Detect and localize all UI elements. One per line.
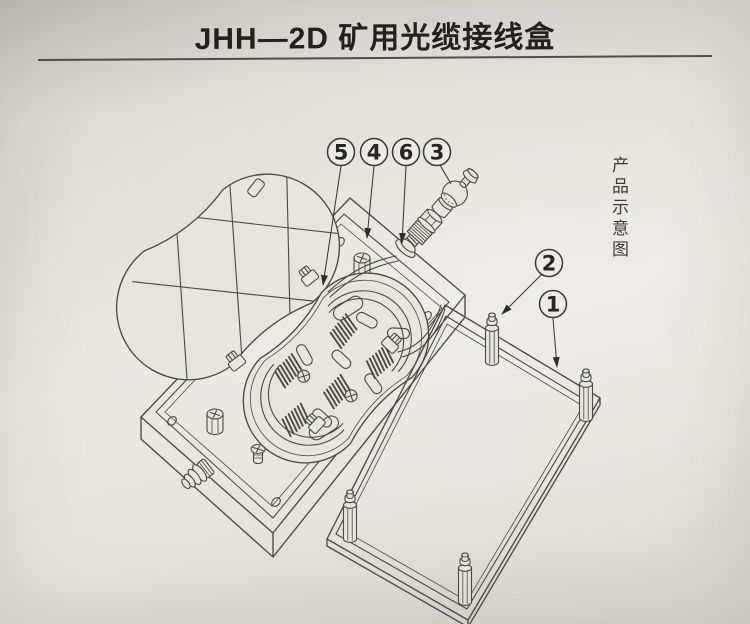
callout-number-4: 4 (367, 141, 382, 165)
callout-number-6: 6 (399, 141, 414, 165)
mounting-post (459, 553, 472, 605)
diagram-canvas: 5 4 6 3 2 (0, 0, 750, 624)
leader-line-6 (402, 166, 406, 243)
mounting-post (580, 369, 593, 421)
photo-background: JHH—2D 矿用光缆接线盒 产品示意图 (0, 0, 750, 624)
callout-number-5: 5 (334, 141, 349, 165)
cable-gland-exploded (393, 163, 484, 260)
callout-number-3: 3 (430, 141, 445, 165)
leader-line-3 (440, 165, 451, 184)
leader-line-1 (553, 318, 557, 367)
callout-1: 1 (540, 291, 567, 368)
hex-standoff (207, 409, 223, 435)
leader-line-4 (367, 166, 374, 238)
callout-4: 4 (361, 139, 388, 239)
callout-number-2: 2 (542, 252, 557, 276)
callout-3: 3 (424, 139, 452, 185)
mounting-post (344, 490, 357, 542)
callout-number-1: 1 (546, 293, 561, 317)
leader-line-2 (502, 273, 543, 314)
pan-screw (251, 445, 265, 464)
mounting-post (486, 313, 499, 365)
